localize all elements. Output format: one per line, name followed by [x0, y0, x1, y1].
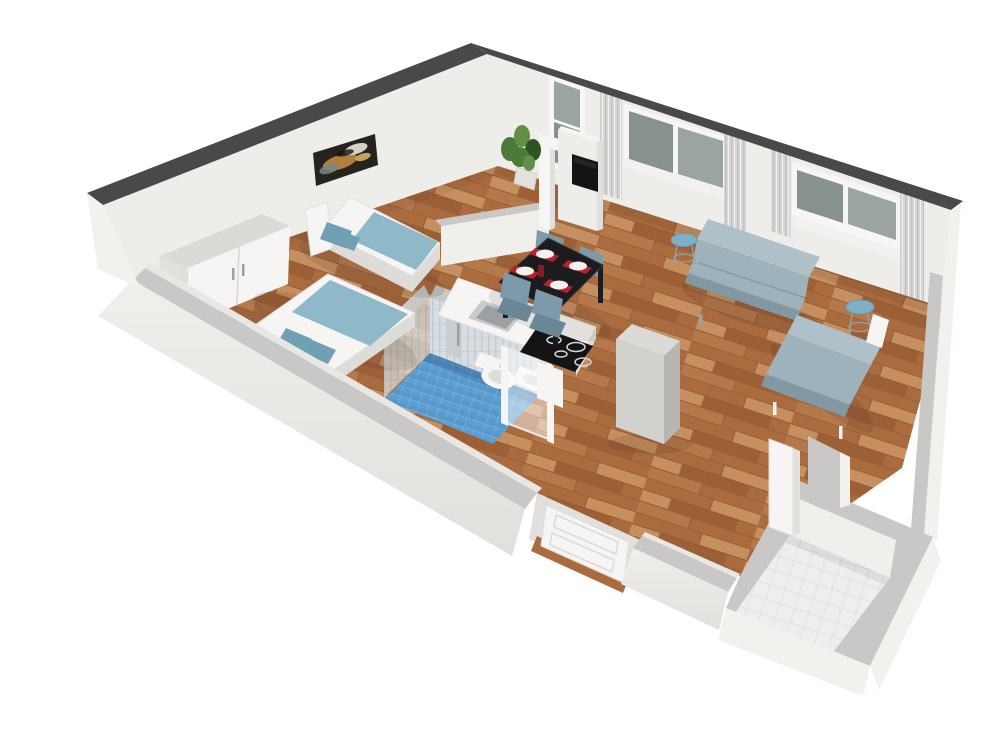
- wardrobe-handle: [232, 268, 235, 280]
- open-door-edge: [793, 448, 800, 536]
- table-leg: [598, 265, 603, 303]
- apartment-3d-svg: [40, 16, 1000, 720]
- open-door-leaf: [769, 439, 793, 536]
- curtain-panel: [600, 91, 622, 200]
- table-vase: [538, 265, 544, 277]
- entry-door-jamb-side: [840, 452, 850, 508]
- curtain-panel: [771, 145, 791, 238]
- curtain-panel: [724, 128, 746, 238]
- wardrobe-handle: [242, 264, 245, 276]
- tv-partition: [558, 126, 603, 231]
- floorplan-render: 3D isometric cutaway floor plan render o…: [40, 16, 1000, 720]
- curtain-panel: [900, 186, 924, 306]
